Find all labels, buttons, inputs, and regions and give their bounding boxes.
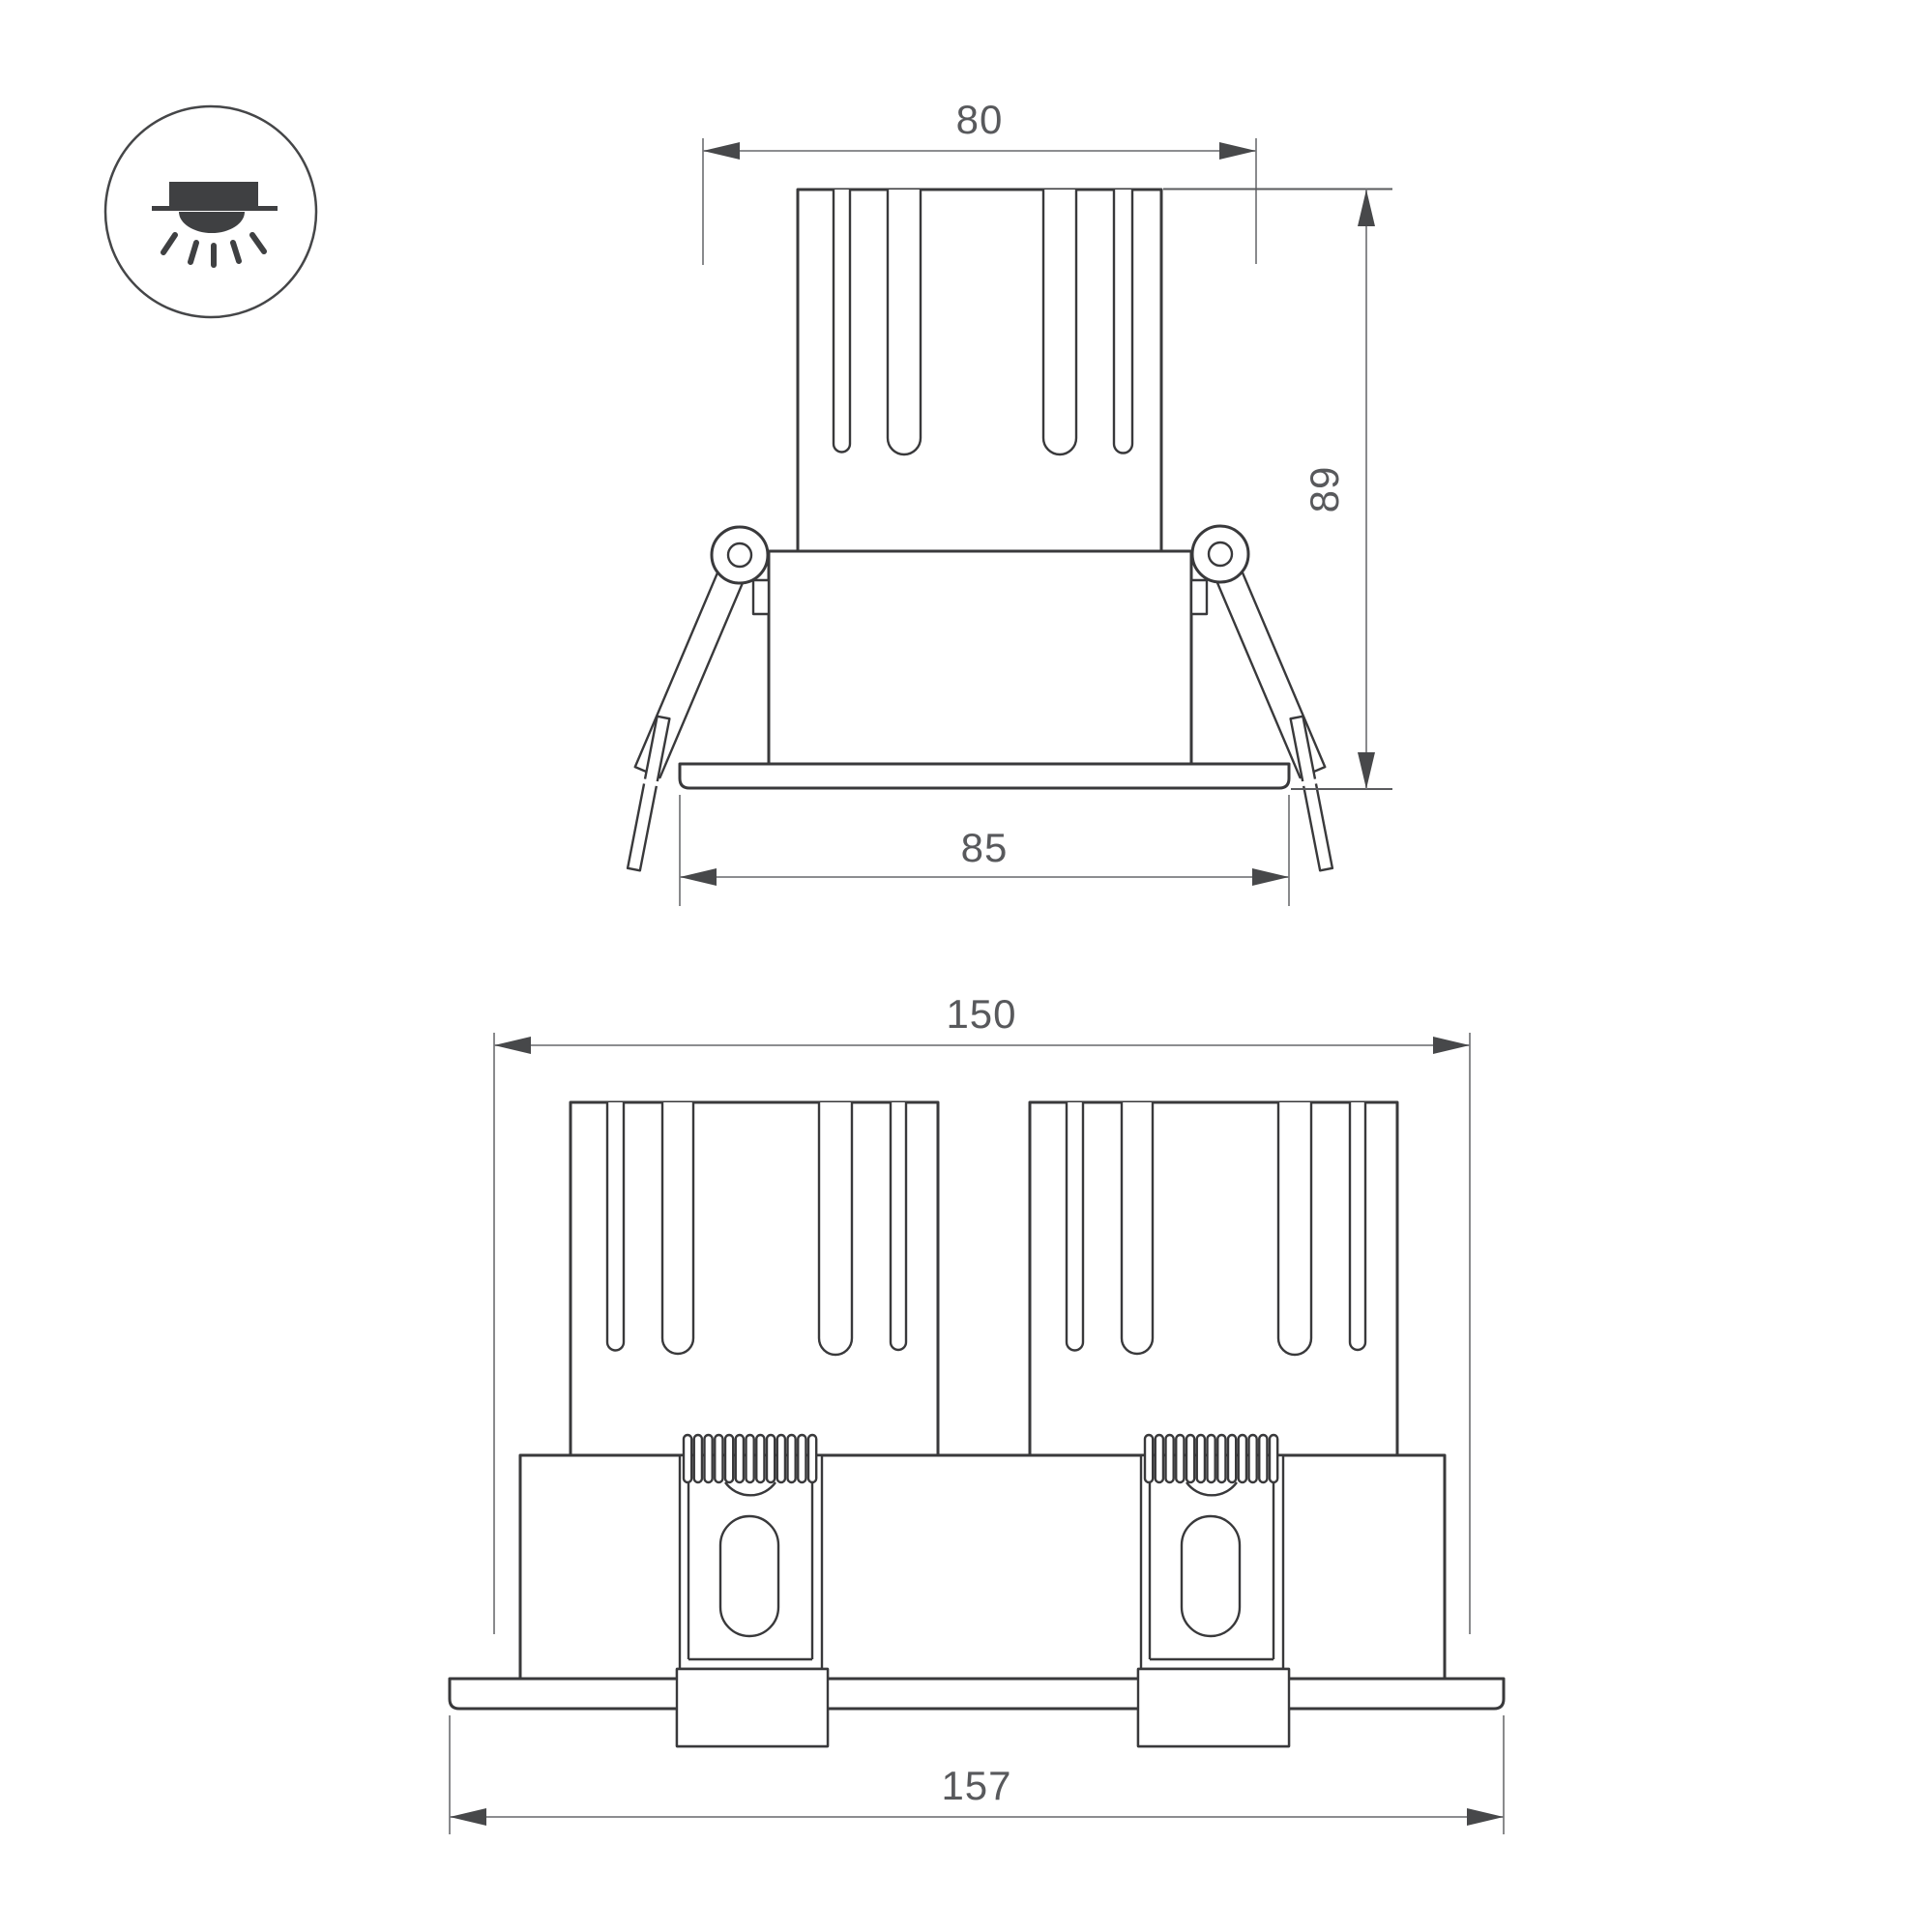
side-body [769, 551, 1191, 764]
dim-150-label: 150 [946, 991, 1016, 1037]
knurl-ridge [777, 1435, 785, 1482]
knurl-ridge [788, 1435, 796, 1482]
spring-clip-right [1215, 566, 1334, 871]
front-heatsink-left [571, 1102, 938, 1455]
drawing-page: 80 89 85 [0, 0, 1932, 1932]
front-body [520, 1455, 1445, 1679]
drawing-canvas: 80 89 85 [0, 0, 1932, 1932]
knurl-ridge [684, 1435, 691, 1482]
dim-157: 157 [450, 1715, 1504, 1834]
front-flange [450, 1679, 1504, 1709]
knurl-ridge [705, 1435, 713, 1482]
knurl-ridge [756, 1435, 764, 1482]
spring-clip-left [626, 566, 746, 871]
knurl-ridge [1156, 1435, 1163, 1482]
clamp-foot-left-front [677, 1669, 828, 1746]
knurl-ridge [715, 1435, 722, 1482]
side-view: 80 89 85 [626, 97, 1392, 906]
side-flange [680, 764, 1289, 788]
clamp-foot-right-front [1138, 1669, 1289, 1746]
recessed-downlight-icon [105, 106, 316, 317]
knurl-ridge [1259, 1435, 1267, 1482]
dim-157-label: 157 [941, 1763, 1011, 1808]
side-heatsink [798, 190, 1161, 551]
clip-pivot-right [1192, 526, 1248, 582]
clamp-knurled-screw [1145, 1435, 1277, 1482]
front-heatsink-right [1030, 1102, 1397, 1455]
side-clip-tab-right [1191, 580, 1207, 614]
dim-85: 85 [680, 795, 1289, 906]
knurl-ridge [1208, 1435, 1215, 1482]
side-clip-tab-left [753, 580, 769, 614]
knurl-ridge [1270, 1435, 1277, 1482]
knurl-ridge [694, 1435, 702, 1482]
knurl-ridge [725, 1435, 733, 1482]
knurl-ridge [1217, 1435, 1225, 1482]
knurl-ridge [1239, 1435, 1246, 1482]
icon-housing [169, 182, 258, 208]
dim-85-label: 85 [961, 825, 1009, 870]
clamp-knurled-screw [684, 1435, 816, 1482]
icon-light-rays [163, 235, 264, 265]
knurl-ridge [1186, 1435, 1194, 1482]
knurl-ridge [1197, 1435, 1205, 1482]
knurl-ridge [1249, 1435, 1257, 1482]
dim-80-label: 80 [956, 97, 1004, 142]
clip-pivot-left [712, 527, 768, 583]
front-view: 150 157 [450, 991, 1504, 1834]
knurl-ridge [746, 1435, 754, 1482]
knurl-ridge [808, 1435, 816, 1482]
knurl-ridge [798, 1435, 805, 1482]
icon-lamp-dome [179, 212, 245, 233]
clamp-slot-hole [720, 1516, 778, 1636]
dim-89-label: 89 [1302, 466, 1347, 513]
knurl-ridge [1145, 1435, 1153, 1482]
knurl-ridge [767, 1435, 775, 1482]
knurl-ridge [1228, 1435, 1236, 1482]
knurl-ridge [736, 1435, 744, 1482]
knurl-ridge [1166, 1435, 1174, 1482]
clamp-slot-hole [1182, 1516, 1240, 1636]
knurl-ridge [1176, 1435, 1184, 1482]
icon-ceiling-flange [152, 206, 278, 211]
